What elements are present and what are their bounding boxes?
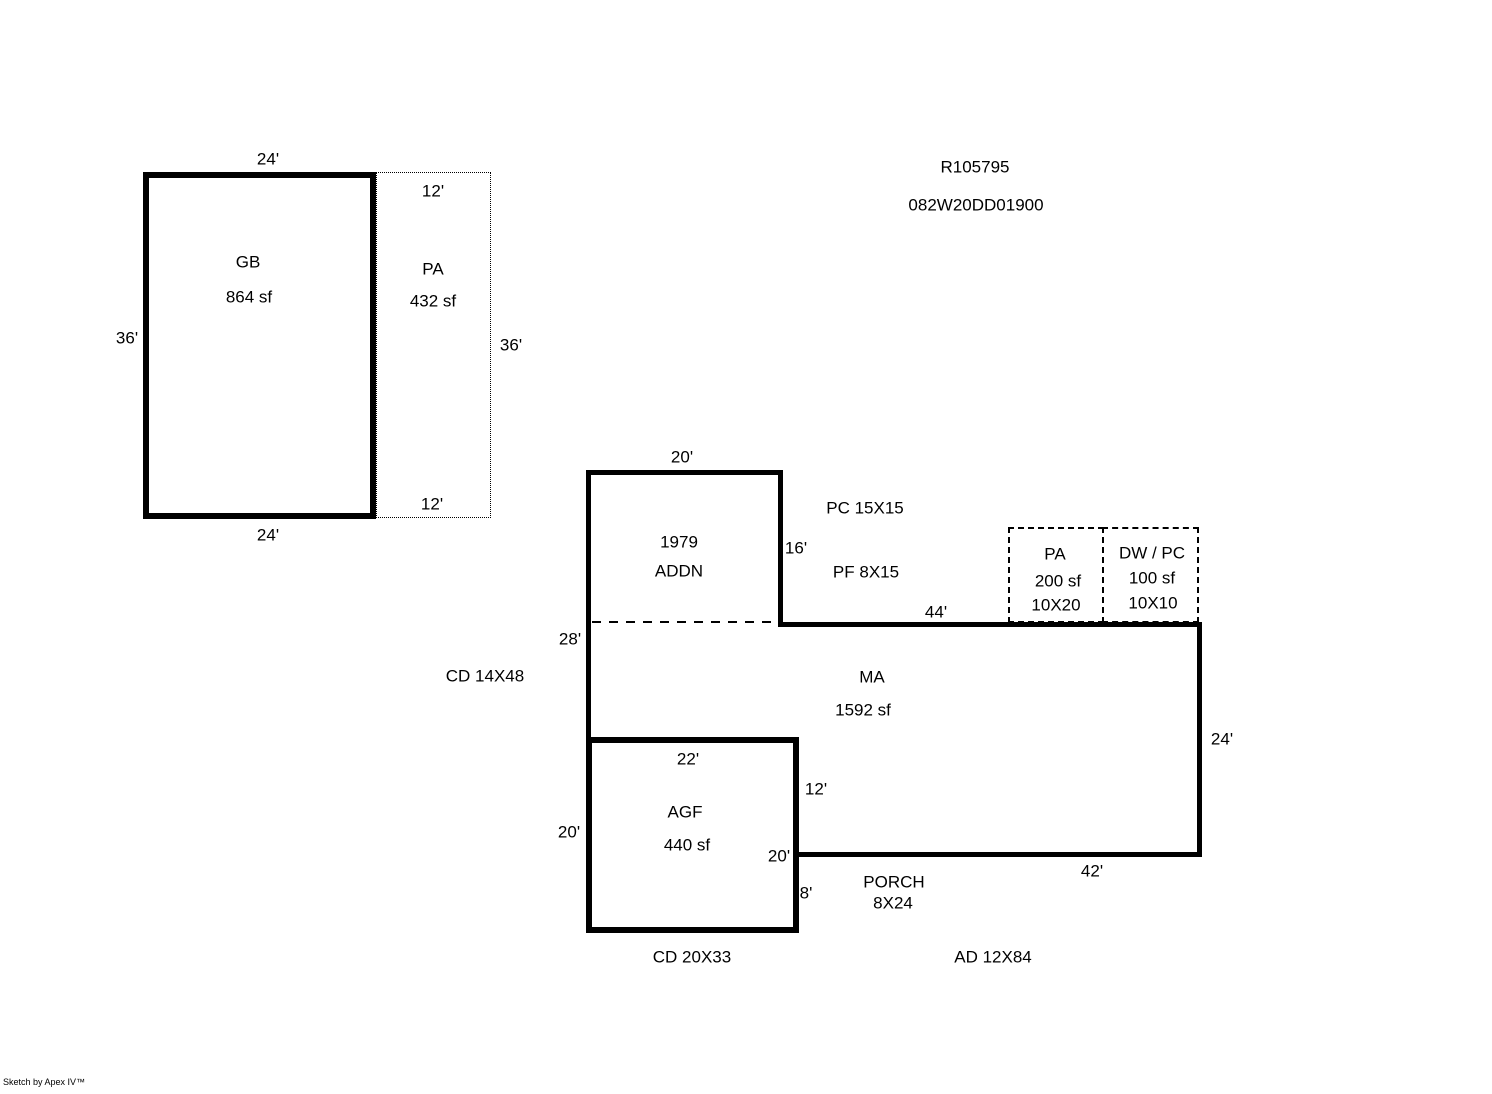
gb-outline bbox=[143, 172, 376, 519]
ma-wall-right bbox=[1197, 622, 1202, 857]
gb-dim-bottom: 24' bbox=[257, 527, 279, 546]
agf-area-label: 440 sf bbox=[664, 837, 710, 856]
porch-label: PORCH bbox=[863, 874, 924, 893]
pf-note-label: PF 8X15 bbox=[833, 564, 899, 583]
ma-label: MA bbox=[859, 669, 885, 688]
addn-dim-top: 20' bbox=[671, 449, 693, 468]
addn-label: ADDN bbox=[655, 563, 703, 582]
pa2-dim-label: 10X20 bbox=[1031, 597, 1080, 616]
pa2-area-label: 200 sf bbox=[1035, 573, 1081, 592]
pc-note-label: PC 15X15 bbox=[826, 500, 904, 519]
ma-dim-right: 24' bbox=[1211, 731, 1233, 750]
agf-porch-side-dim: 8' bbox=[800, 885, 813, 904]
addn-wall-right bbox=[778, 470, 783, 627]
ma-dim-bottom: 42' bbox=[1081, 863, 1103, 882]
watermark: Sketch by Apex IV™ bbox=[3, 1077, 85, 1087]
gb-dim-top: 24' bbox=[257, 151, 279, 170]
addn-divider-dashed-line bbox=[592, 621, 778, 623]
dwpc-area-label: 100 sf bbox=[1129, 570, 1175, 589]
ma-wall-left bbox=[586, 470, 591, 742]
agf-dim-top: 22' bbox=[677, 751, 699, 770]
addn-dim-right: 16' bbox=[785, 540, 807, 559]
pa1-dim-right: 36' bbox=[500, 337, 522, 356]
ma-area-label: 1592 sf bbox=[835, 702, 891, 721]
agf-dim-right: 20' bbox=[768, 848, 790, 867]
pa2-label: PA bbox=[1044, 546, 1065, 565]
pa1-outline bbox=[376, 172, 491, 518]
gb-dim-left: 36' bbox=[116, 330, 138, 349]
parcel-id-label: 082W20DD01900 bbox=[908, 197, 1043, 216]
agf-dim-left: 20' bbox=[558, 824, 580, 843]
pa1-label: PA bbox=[422, 261, 443, 280]
gb-label: GB bbox=[236, 254, 261, 273]
gb-area-label: 864 sf bbox=[226, 289, 272, 308]
addn-year-label: 1979 bbox=[660, 534, 698, 553]
ma-dim-top: 44' bbox=[925, 604, 947, 623]
agf-label: AGF bbox=[668, 804, 703, 823]
pa1-dim-top: 12' bbox=[422, 183, 444, 202]
cd-upper-note-label: CD 14X48 bbox=[446, 668, 524, 687]
ad-note-label: AD 12X84 bbox=[954, 949, 1032, 968]
pa1-area-label: 432 sf bbox=[410, 293, 456, 312]
record-id-label: R105795 bbox=[940, 159, 1009, 178]
ma-dim-left: 28' bbox=[559, 631, 581, 650]
sketch-canvas: R105795 082W20DD01900 24' GB 864 sf 36' … bbox=[0, 0, 1492, 1094]
ma-dim-notch: 12' bbox=[805, 781, 827, 800]
porch-dim-label: 8X24 bbox=[873, 895, 913, 914]
pa1-dim-bottom: 12' bbox=[421, 496, 443, 515]
addn-wall-top bbox=[586, 470, 783, 475]
ma-wall-bottom bbox=[793, 852, 1202, 857]
dwpc-dim-label: 10X10 bbox=[1128, 595, 1177, 614]
dwpc-label: DW / PC bbox=[1119, 545, 1185, 564]
cd-lower-note-label: CD 20X33 bbox=[653, 949, 731, 968]
